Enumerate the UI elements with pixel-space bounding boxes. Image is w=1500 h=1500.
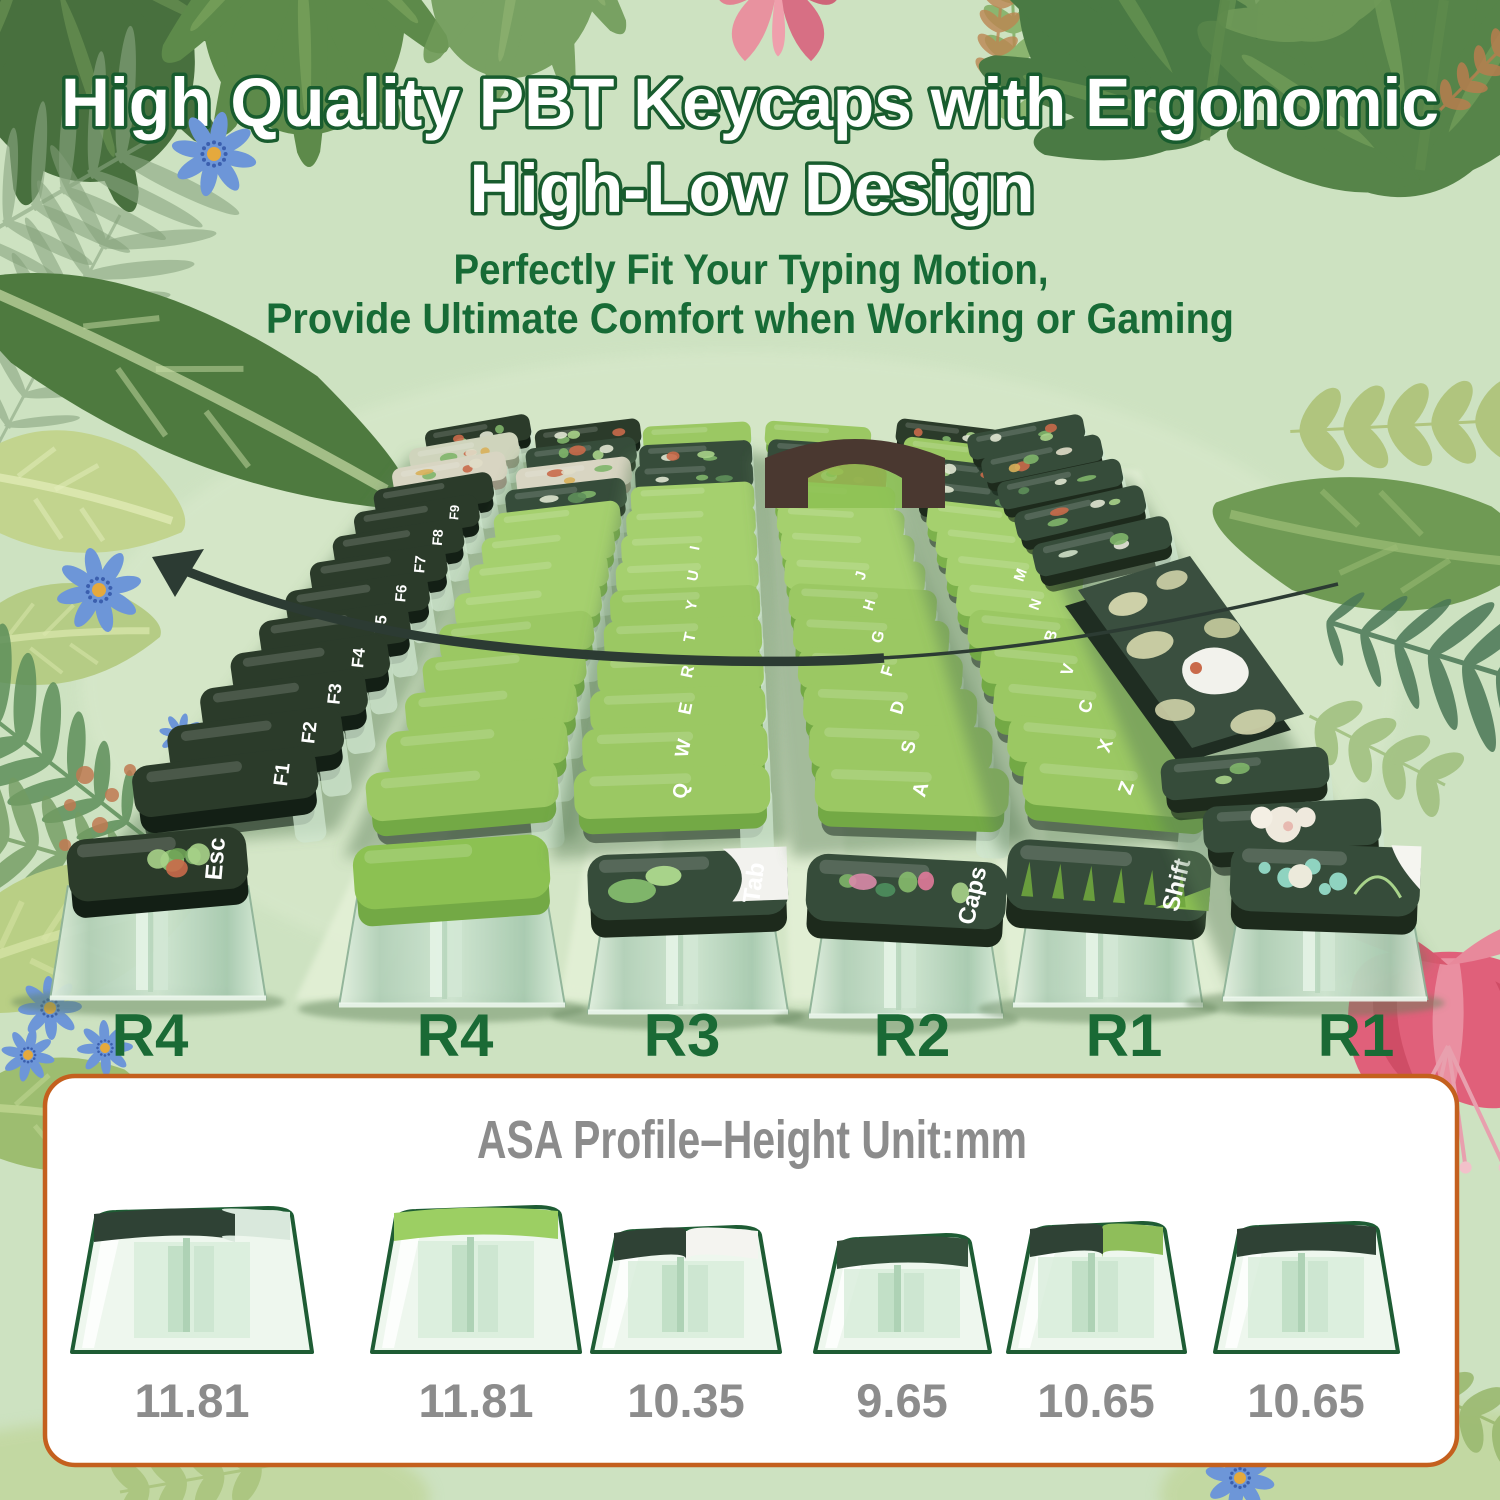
svg-text:R4: R4 <box>112 1002 189 1069</box>
svg-text:F4: F4 <box>348 646 369 668</box>
svg-text:F7: F7 <box>411 555 430 574</box>
svg-text:10.65: 10.65 <box>1037 1374 1155 1427</box>
svg-text:F3: F3 <box>323 682 345 705</box>
svg-text:R1: R1 <box>1318 1002 1395 1069</box>
svg-text:ASA Profile–Height Unit:mm: ASA Profile–Height Unit:mm <box>477 1110 1027 1170</box>
svg-text:11.81: 11.81 <box>134 1374 249 1427</box>
svg-text:10.35: 10.35 <box>627 1374 745 1427</box>
svg-text:F9: F9 <box>446 504 462 520</box>
svg-text:R3: R3 <box>644 1002 721 1069</box>
svg-text:Perfectly Fit Your Typing Moti: Perfectly Fit Your Typing Motion, <box>454 246 1049 294</box>
svg-text:R2: R2 <box>874 1002 951 1069</box>
svg-text:R4: R4 <box>417 1002 494 1069</box>
svg-text:High-Low Design: High-Low Design <box>470 150 1035 227</box>
svg-text:11.81: 11.81 <box>418 1374 533 1427</box>
svg-text:9.65: 9.65 <box>856 1374 947 1427</box>
svg-text:F1: F1 <box>270 761 295 787</box>
svg-text:10.65: 10.65 <box>1247 1374 1365 1427</box>
svg-text:F8: F8 <box>429 528 446 546</box>
svg-text:F6: F6 <box>392 584 411 603</box>
svg-text:F2: F2 <box>298 720 321 744</box>
svg-text:High Quality PBT Keycaps with: High Quality PBT Keycaps with Ergonomic <box>61 64 1439 141</box>
svg-text:Tab: Tab <box>738 861 770 905</box>
svg-text:R1: R1 <box>1086 1002 1163 1069</box>
svg-text:Esc: Esc <box>200 836 231 881</box>
svg-text:Provide Ultimate Comfort when: Provide Ultimate Comfort when Working or… <box>266 295 1234 343</box>
